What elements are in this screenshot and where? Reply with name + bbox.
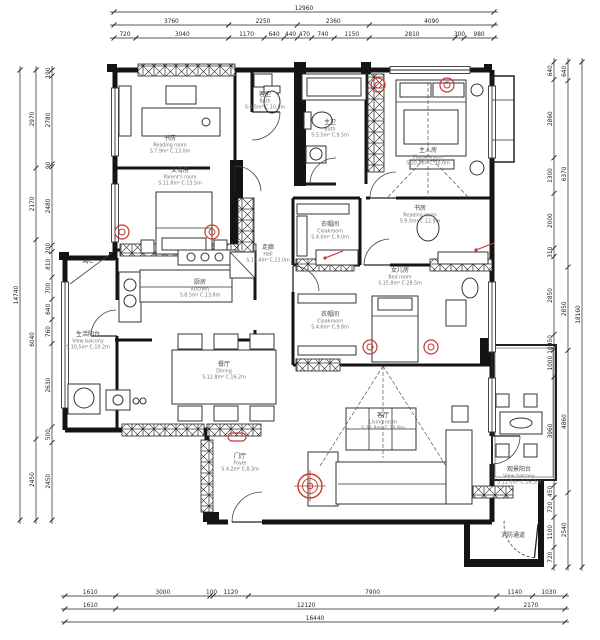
svg-text:门厅: 门厅	[234, 452, 246, 460]
room-label-foyer: 门厅FoyerS.4.2m² C.8.3m	[221, 452, 259, 473]
dimension-text: 3760	[164, 19, 179, 25]
svg-text:Kitchen: Kitchen	[191, 287, 209, 293]
dimension-text: 2450	[46, 474, 52, 489]
svg-text:Reading room: Reading room	[153, 143, 187, 149]
dimension-text: 1000	[548, 356, 554, 371]
dimension-text: 14740	[14, 285, 20, 304]
dimension-text: 810	[46, 258, 52, 269]
room-label-cloakroom-2: 衣帽间CloakroomS.4.6m² C.9.8m	[311, 310, 349, 331]
svg-text:衣帽间: 衣帽间	[321, 310, 339, 318]
dimension-text: 2810	[405, 32, 420, 38]
svg-text:Foyer: Foyer	[233, 461, 246, 467]
svg-text:S.11.0m² C.26.3m: S.11.0m² C.26.3m	[497, 480, 541, 486]
dimension-text: 760	[46, 326, 52, 337]
dimension-text: 2170	[30, 196, 36, 211]
svg-text:父母房: 父母房	[171, 166, 189, 174]
dimension-text: 2250	[256, 19, 271, 25]
dimension-text: 1030	[541, 590, 556, 596]
dimension-text: 300	[454, 32, 465, 38]
svg-text:Master room: Master room	[413, 155, 444, 161]
dimension-text: 2450	[30, 472, 36, 487]
dimension-text: 2360	[326, 19, 341, 25]
dimension-text: 720	[548, 551, 554, 562]
svg-text:S.5.5m² C.9.5m: S.5.5m² C.9.5m	[311, 133, 349, 139]
dimension-text: 1140	[507, 590, 522, 596]
dimension-text: 2000	[548, 213, 554, 228]
svg-text:书房: 书房	[414, 204, 426, 212]
dimension-text: 980	[474, 32, 485, 38]
dimension-text: 720	[548, 502, 554, 513]
svg-text:S.7.9m² C.13.0m: S.7.9m² C.13.0m	[150, 149, 191, 155]
svg-text:S.4.5m² C.10.5m: S.4.5m² C.10.5m	[245, 105, 286, 111]
room-label-service-balcony: 生活阳台View balconyS.10.5m² C.10.2m	[66, 330, 110, 351]
svg-text:Bath: Bath	[259, 99, 270, 105]
dimension-text: 720	[119, 32, 130, 38]
room-label-reading-room-2: 书房Reading roomS.9.5m² C.12.9m	[400, 204, 441, 225]
svg-text:View balcony: View balcony	[503, 474, 535, 480]
floor-plan-sheet: 1296037602250236040907203040117064044047…	[0, 0, 600, 640]
svg-text:S.4.2m² C.8.3m: S.4.2m² C.8.3m	[221, 467, 259, 473]
svg-text:Dining: Dining	[216, 369, 232, 375]
dimension-text: 6370	[562, 166, 568, 181]
detail-marker-icon	[424, 340, 438, 354]
room-label-daughter-room: 女儿房Bed roomS.15.8m² C.28.5m	[378, 266, 422, 287]
svg-text:S.12.4m² C.22.0m: S.12.4m² C.22.0m	[246, 258, 290, 264]
dimension-text: 18160	[576, 305, 582, 324]
dimension-text: 1610	[83, 603, 98, 609]
svg-text:消防通道: 消防通道	[501, 531, 525, 539]
dimension-text: 740	[317, 32, 328, 38]
dimension-text: 310	[548, 246, 554, 257]
dimension-text: 1610	[83, 590, 98, 596]
dimension-text: 2630	[46, 377, 52, 392]
dimension-text: 4090	[424, 19, 439, 25]
svg-text:观景阳台: 观景阳台	[507, 465, 531, 473]
svg-text:Hall: Hall	[263, 252, 272, 258]
dimension-text: 100	[206, 590, 217, 596]
dimension-text: 640	[548, 65, 554, 76]
dimension-text: 3960	[548, 423, 554, 438]
svg-text:生活阳台: 生活阳台	[76, 330, 100, 338]
dimension-text: 640	[269, 32, 280, 38]
floor-plan-drawing: 1296037602250236040907203040117064044047…	[0, 0, 600, 640]
svg-text:Reading room: Reading room	[403, 213, 437, 219]
svg-text:书房: 书房	[164, 134, 176, 142]
dimension-text: 2480	[46, 198, 52, 213]
svg-text:厨房: 厨房	[194, 278, 206, 286]
svg-text:S.15.8m² C.28.5m: S.15.8m² C.28.5m	[378, 281, 422, 287]
dimension-text: 3040	[175, 32, 190, 38]
dimension-text: 2970	[30, 111, 36, 126]
dimension-text: 470	[299, 32, 310, 38]
dimension-text: 640	[562, 66, 568, 77]
svg-text:Bath: Bath	[324, 127, 335, 133]
dimension-text: 16440	[306, 616, 325, 622]
dimension-text: 2780	[46, 112, 52, 127]
svg-text:Cloakroom: Cloakroom	[317, 229, 343, 235]
dimension-text: 1150	[344, 32, 359, 38]
svg-text:S.10.5m² C.10.2m: S.10.5m² C.10.2m	[66, 345, 110, 351]
dimension-text: 640	[46, 304, 52, 315]
dimension-text: 1170	[239, 32, 254, 38]
dimension-text: 2540	[562, 522, 568, 537]
dimension-text: 1300	[548, 168, 554, 183]
dimension-text: 450	[548, 486, 554, 497]
dimension-text: 2860	[548, 111, 554, 126]
svg-text:主人房: 主人房	[419, 146, 437, 154]
room-label-cloakroom-1: 衣帽间CloakroomS.4.0m² C.9.0m	[311, 220, 349, 241]
svg-text:Bed room: Bed room	[388, 275, 412, 281]
svg-text:S.12.8m² C.16.2m: S.12.8m² C.16.2m	[202, 375, 246, 381]
svg-text:S.9.5m² C.12.9m: S.9.5m² C.12.9m	[400, 219, 441, 225]
svg-text:S.11.8m² C.13.5m: S.11.8m² C.13.5m	[158, 181, 202, 187]
dimension-text: 4860	[562, 414, 568, 429]
room-label-view-balcony: 观景阳台View balconyS.11.0m² C.26.3m	[497, 465, 541, 486]
svg-text:S.8.5m² C.13.8m: S.8.5m² C.13.8m	[180, 293, 221, 299]
svg-text:客厅: 客厅	[377, 411, 389, 419]
dimension-text: 500	[46, 429, 52, 440]
svg-text:走廊: 走廊	[262, 243, 274, 251]
dimension-text: 1100	[548, 525, 554, 540]
svg-text:衣帽间: 衣帽间	[321, 220, 339, 228]
dimension-text: 700	[46, 282, 52, 293]
svg-text:View balcony: View balcony	[72, 339, 104, 345]
svg-text:Cloakroom: Cloakroom	[317, 319, 343, 325]
svg-text:Parent's room: Parent's room	[163, 175, 196, 181]
dimension-text: 7900	[365, 590, 380, 596]
dimension-text: 440	[285, 32, 296, 38]
svg-text:客卫: 客卫	[259, 90, 271, 98]
room-label-reading-room-1: 书房Reading roomS.7.9m² C.13.0m	[150, 134, 191, 155]
dimension-text: 6040	[30, 332, 36, 347]
dimension-text: 2850	[548, 288, 554, 303]
dimension-text: 1120	[223, 590, 238, 596]
dimension-text: 2850	[562, 301, 568, 316]
svg-text:主卫: 主卫	[324, 118, 336, 126]
svg-text:S.4.6m² C.9.8m: S.4.6m² C.9.8m	[311, 325, 349, 331]
svg-text:Living room: Living room	[369, 420, 398, 426]
dimension-text: 2170	[523, 603, 538, 609]
ac-annotation: A/C	[83, 258, 93, 265]
svg-text:餐厅: 餐厅	[218, 360, 230, 368]
dimension-text: 12960	[295, 6, 314, 12]
svg-text:S.36.8m² C.25.8m: S.36.8m² C.25.8m	[361, 426, 405, 432]
svg-text:S.4.0m² C.9.0m: S.4.0m² C.9.0m	[311, 235, 349, 241]
dimension-text: 12120	[297, 603, 316, 609]
dimension-text: 100	[548, 342, 554, 353]
svg-text:S.20.8m² C.30.0m: S.20.8m² C.30.0m	[406, 161, 450, 167]
dimension-text: 3000	[155, 590, 170, 596]
svg-text:女儿房: 女儿房	[391, 266, 409, 274]
room-label-fire-corridor: 消防通道	[501, 531, 525, 539]
